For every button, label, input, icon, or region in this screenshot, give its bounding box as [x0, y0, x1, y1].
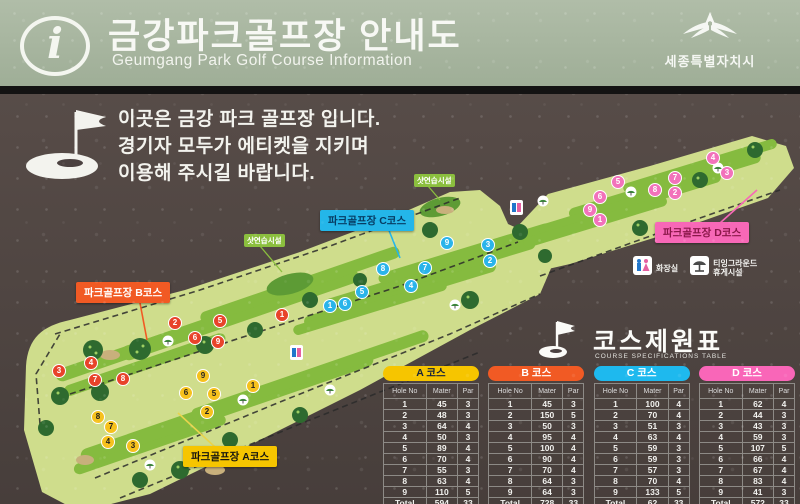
spec-table-subtitle: COURSE SPECIFICATIONS TABLE	[595, 353, 727, 360]
spec-cell: 4	[384, 432, 427, 443]
hole-marker-B7: 7	[88, 373, 102, 387]
spec-cell: 8	[384, 476, 427, 487]
spec-cell: 48	[426, 410, 457, 421]
notice-line: 경기자 모두가 에티켓을 지키며	[118, 133, 381, 160]
spec-cell: 5	[594, 443, 637, 454]
spec-cell: Total	[489, 498, 532, 504]
spec-cell: 7	[489, 465, 532, 476]
hole-marker-C8: 8	[376, 262, 390, 276]
spec-cell: 3	[668, 443, 689, 454]
spec-cell: 67	[742, 465, 773, 476]
hole-marker-B3: 3	[52, 364, 66, 378]
shelter-icon	[690, 256, 709, 280]
spec-cell: 70	[531, 465, 562, 476]
spec-table: Hole NoMaterPar1100427043513463455936593…	[594, 383, 690, 504]
hole-marker-C1: 1	[323, 299, 337, 313]
spec-cell: 8	[594, 476, 637, 487]
spec-row: 8643	[489, 476, 584, 487]
spec-cell: 110	[426, 487, 457, 498]
course-label-D: 파크골프장 D코스	[655, 222, 749, 243]
spec-cell: 133	[637, 487, 668, 498]
spec-column-header: Hole No	[594, 384, 637, 399]
golf-hole-flag-icon	[24, 102, 108, 182]
hole-marker-D4: 4	[706, 151, 720, 165]
hole-marker-C6: 6	[338, 297, 352, 311]
spec-cell: 4	[668, 476, 689, 487]
spec-cell: 9	[384, 487, 427, 498]
hole-marker-B8: 8	[116, 372, 130, 386]
spec-cell: 3	[563, 487, 584, 498]
course-table-header: D 코스	[699, 366, 795, 381]
course-label-B: 파크골프장 B코스	[76, 282, 170, 303]
spec-row: 4954	[489, 432, 584, 443]
spec-cell: 7	[594, 465, 637, 476]
spec-row: 2443	[699, 410, 794, 421]
spec-cell: 9	[594, 487, 637, 498]
hole-marker-C4: 4	[404, 279, 418, 293]
course-map-board: 이곳은 금강 파크 골프장 입니다. 경기자 모두가 에티켓을 지키며 이용해 …	[0, 94, 800, 504]
spec-row: 9413	[699, 487, 794, 498]
spec-cell: 3	[458, 432, 479, 443]
spec-cell: 2	[699, 410, 742, 421]
course-table-B: B 코스Hole NoMaterPar145321505350349545100…	[488, 366, 584, 504]
hole-marker-A8: 8	[91, 410, 105, 424]
spec-column-header: Par	[458, 384, 479, 399]
spec-cell: 50	[426, 432, 457, 443]
spec-cell: 4	[563, 454, 584, 465]
spec-row: 4634	[594, 432, 689, 443]
spec-cell: 1	[594, 399, 637, 410]
spec-row: 6593	[594, 454, 689, 465]
spec-column-header: Mater	[637, 384, 668, 399]
hole-marker-D6: 6	[593, 190, 607, 204]
spec-cell: Total	[594, 498, 637, 504]
spec-cell: 3	[699, 421, 742, 432]
spec-row: 3433	[699, 421, 794, 432]
spec-cell: 8	[699, 476, 742, 487]
spec-cell: 62	[637, 498, 668, 504]
legend-label: 티잉그라운드휴게시설	[713, 259, 757, 277]
spec-cell: 4	[458, 443, 479, 454]
spec-cell: 59	[742, 432, 773, 443]
spec-cell: 2	[594, 410, 637, 421]
facility-label: 샷연습시설	[414, 174, 455, 187]
spec-column-header: Par	[668, 384, 689, 399]
legend-item: 티잉그라운드휴게시설	[690, 256, 757, 280]
spec-cell: 4	[774, 476, 795, 487]
spec-cell: 107	[742, 443, 773, 454]
hole-marker-C7: 7	[418, 261, 432, 275]
spec-cell: 33	[458, 498, 479, 504]
spec-column-header: Par	[563, 384, 584, 399]
spec-row: 8634	[384, 476, 479, 487]
hole-marker-B2: 2	[168, 316, 182, 330]
spec-cell: 59	[637, 443, 668, 454]
sejong-city-logo: 세종특별자치시	[640, 10, 780, 70]
spec-cell: 5	[563, 410, 584, 421]
hole-marker-D5: 5	[611, 175, 625, 189]
hole-marker-D7: 7	[668, 171, 682, 185]
hole-marker-D2: 2	[668, 186, 682, 200]
spec-cell: 63	[637, 432, 668, 443]
spec-row: 7553	[384, 465, 479, 476]
spec-cell: 3	[458, 465, 479, 476]
spec-row: 2483	[384, 410, 479, 421]
spec-row: 5894	[384, 443, 479, 454]
information-icon: i	[20, 16, 90, 76]
spec-cell: 3	[774, 487, 795, 498]
hole-marker-A1: 1	[246, 379, 260, 393]
spec-row: 9643	[489, 487, 584, 498]
table-flag-icon	[539, 318, 579, 360]
spec-cell: 4	[563, 465, 584, 476]
spec-row: 6904	[489, 454, 584, 465]
spec-row: 4503	[384, 432, 479, 443]
spec-cell: 5	[489, 443, 532, 454]
spec-cell: 70	[426, 454, 457, 465]
hole-marker-A7: 7	[104, 420, 118, 434]
spec-cell: 7	[384, 465, 427, 476]
spec-column-header: Par	[774, 384, 795, 399]
hole-marker-B6: 6	[188, 331, 202, 345]
spec-row: 6704	[384, 454, 479, 465]
spec-cell: 6	[699, 454, 742, 465]
spec-row: 51075	[699, 443, 794, 454]
spec-cell: 50	[531, 421, 562, 432]
spec-cell: 1	[489, 399, 532, 410]
spec-row: 21505	[489, 410, 584, 421]
spec-cell: 100	[637, 399, 668, 410]
spec-cell: 3	[384, 421, 427, 432]
spec-cell: 3	[774, 410, 795, 421]
course-table-header: A 코스	[383, 366, 479, 381]
spec-cell: 4	[563, 432, 584, 443]
notice-line: 이용해 주시길 바랍니다.	[118, 160, 381, 187]
spec-cell: 64	[531, 487, 562, 498]
spec-row: 3503	[489, 421, 584, 432]
spec-cell: 7	[699, 465, 742, 476]
spec-row: 5593	[594, 443, 689, 454]
golf-course-sign: i 금강파크골프장 안내도 Geumgang Park Golf Course …	[0, 0, 800, 504]
spec-cell: 3	[668, 421, 689, 432]
spec-row: 91105	[384, 487, 479, 498]
spec-row: 51004	[489, 443, 584, 454]
spec-cell: 6	[489, 454, 532, 465]
hole-marker-C9: 9	[440, 236, 454, 250]
spec-table: Hole NoMaterPar1624244334334593510756664…	[699, 383, 795, 504]
spec-cell: 70	[637, 410, 668, 421]
hole-marker-A6: 6	[179, 386, 193, 400]
course-table-header: B 코스	[488, 366, 584, 381]
sign-subtitle: Geumgang Park Golf Course Information	[112, 52, 412, 70]
spec-cell: 1	[699, 399, 742, 410]
spec-cell: 55	[426, 465, 457, 476]
spec-cell: 43	[742, 421, 773, 432]
hole-marker-A5: 5	[207, 387, 221, 401]
spec-cell: 4	[489, 432, 532, 443]
course-table-A: A 코스Hole NoMaterPar145324833644450358946…	[383, 366, 479, 504]
hole-marker-B4: 4	[84, 356, 98, 370]
hole-marker-D8: 8	[648, 183, 662, 197]
spec-cell: 3	[563, 421, 584, 432]
hole-marker-B9: 9	[211, 335, 225, 349]
spec-cell: 63	[426, 476, 457, 487]
spec-column-header: Hole No	[384, 384, 427, 399]
legend-item: 화장실	[633, 256, 678, 280]
spec-cell: 83	[742, 476, 773, 487]
spec-cell: 3	[489, 421, 532, 432]
spec-cell: 57	[637, 465, 668, 476]
spec-row: 8834	[699, 476, 794, 487]
sign-header: i 금강파크골프장 안내도 Geumgang Park Golf Course …	[0, 0, 800, 86]
spec-row: 3513	[594, 421, 689, 432]
spec-cell: 8	[489, 476, 532, 487]
spec-cell: 3	[668, 454, 689, 465]
spec-cell: 3	[668, 465, 689, 476]
course-label-C: 파크골프장 C코스	[320, 210, 414, 231]
spec-row: 11004	[594, 399, 689, 410]
spec-cell: 33	[563, 498, 584, 504]
course-label-A: 파크골프장 A코스	[183, 446, 277, 467]
hole-marker-A2: 2	[200, 405, 214, 419]
spec-row: 1624	[699, 399, 794, 410]
spec-cell: 728	[531, 498, 562, 504]
spec-cell: 6	[384, 454, 427, 465]
spec-row: 1453	[384, 399, 479, 410]
spec-cell: 9	[699, 487, 742, 498]
hole-marker-D3: 3	[720, 166, 734, 180]
spec-cell: 3	[458, 410, 479, 421]
hole-marker-A4: 4	[101, 435, 115, 449]
spec-cell: Total	[699, 498, 742, 504]
spec-cell: 4	[668, 399, 689, 410]
spec-column-header: Mater	[426, 384, 457, 399]
spec-cell: 45	[531, 399, 562, 410]
spec-row: 2704	[594, 410, 689, 421]
legend-label: 화장실	[656, 264, 678, 273]
spec-cell: 4	[594, 432, 637, 443]
facility-label: 샷연습시설	[244, 234, 285, 247]
spec-cell: 6	[594, 454, 637, 465]
hole-marker-C3: 3	[481, 238, 495, 252]
spec-row: 6664	[699, 454, 794, 465]
spec-cell: 5	[699, 443, 742, 454]
spec-cell: 44	[742, 410, 773, 421]
spec-cell: 4	[563, 443, 584, 454]
spec-row: 7573	[594, 465, 689, 476]
spec-cell: 5	[668, 487, 689, 498]
spec-cell: 1	[384, 399, 427, 410]
spec-cell: 3	[594, 421, 637, 432]
spec-cell: 2	[384, 410, 427, 421]
spec-cell: 33	[668, 498, 689, 504]
spec-row: 4593	[699, 432, 794, 443]
spec-cell: 3	[563, 476, 584, 487]
spec-table: Hole NoMaterPar1453215053503495451004690…	[488, 383, 584, 504]
spec-table: Hole NoMaterPar1453248336444503589467047…	[383, 383, 479, 504]
spec-cell: 5	[458, 487, 479, 498]
spec-total-row: Total57233	[699, 498, 794, 504]
spec-column-header: Mater	[531, 384, 562, 399]
spec-cell: 5	[384, 443, 427, 454]
spec-cell: 4	[774, 465, 795, 476]
spec-cell: 5	[774, 443, 795, 454]
spec-cell: 45	[426, 399, 457, 410]
spec-row: 3644	[384, 421, 479, 432]
spec-row: 7674	[699, 465, 794, 476]
hole-marker-C5: 5	[355, 285, 369, 299]
spec-cell: 89	[426, 443, 457, 454]
spec-row: 8704	[594, 476, 689, 487]
spec-cell: 3	[774, 432, 795, 443]
hole-marker-B1: 1	[275, 308, 289, 322]
spec-cell: 59	[637, 454, 668, 465]
spec-cell: 2	[489, 410, 532, 421]
spec-total-row: Total72833	[489, 498, 584, 504]
map-legend: 화장실티잉그라운드휴게시설	[633, 256, 757, 280]
spec-cell: 62	[742, 399, 773, 410]
hole-marker-C2: 2	[483, 254, 497, 268]
hole-marker-A9: 9	[196, 369, 210, 383]
spec-cell: 66	[742, 454, 773, 465]
spec-cell: 594	[426, 498, 457, 504]
spec-cell: 95	[531, 432, 562, 443]
spec-cell: 51	[637, 421, 668, 432]
spec-column-header: Mater	[742, 384, 773, 399]
notice-line: 이곳은 금강 파크 골프장 입니다.	[118, 106, 381, 133]
spec-column-header: Hole No	[489, 384, 532, 399]
spec-row: 1453	[489, 399, 584, 410]
spec-cell: 4	[668, 432, 689, 443]
spec-cell: 90	[531, 454, 562, 465]
spec-cell: 3	[774, 421, 795, 432]
spec-cell: 4	[699, 432, 742, 443]
spec-cell: 572	[742, 498, 773, 504]
etiquette-notice: 이곳은 금강 파크 골프장 입니다. 경기자 모두가 에티켓을 지키며 이용해 …	[118, 106, 381, 187]
spec-cell: 64	[531, 476, 562, 487]
header-divider	[0, 86, 800, 94]
spec-row: 91335	[594, 487, 689, 498]
course-tables: A 코스Hole NoMaterPar145324833644450358946…	[383, 366, 795, 504]
spec-cell: 64	[426, 421, 457, 432]
hole-marker-A3: 3	[126, 439, 140, 453]
spec-total-row: Total6233	[594, 498, 689, 504]
course-table-header: C 코스	[594, 366, 690, 381]
sejong-emblem-icon	[675, 10, 745, 44]
hole-marker-B5: 5	[213, 314, 227, 328]
spec-total-row: Total59433	[384, 498, 479, 504]
spec-cell: 4	[458, 476, 479, 487]
course-table-D: D 코스Hole NoMaterPar162424433433459351075…	[699, 366, 795, 504]
spec-row: 7704	[489, 465, 584, 476]
spec-cell: 150	[531, 410, 562, 421]
spec-cell: 4	[774, 399, 795, 410]
spec-cell: 4	[458, 454, 479, 465]
spec-cell: 41	[742, 487, 773, 498]
spec-cell: 4	[774, 454, 795, 465]
restroom-icon	[633, 256, 652, 280]
sejong-logo-text: 세종특별자치시	[640, 51, 780, 70]
spec-cell: 3	[458, 399, 479, 410]
spec-cell: Total	[384, 498, 427, 504]
spec-cell: 100	[531, 443, 562, 454]
spec-cell: 33	[774, 498, 795, 504]
spec-cell: 4	[458, 421, 479, 432]
spec-column-header: Hole No	[699, 384, 742, 399]
hole-marker-D1: 1	[593, 213, 607, 227]
spec-cell: 9	[489, 487, 532, 498]
spec-cell: 3	[563, 399, 584, 410]
course-table-C: C 코스Hole NoMaterPar110042704351346345593…	[594, 366, 690, 504]
spec-cell: 4	[668, 410, 689, 421]
spec-cell: 70	[637, 476, 668, 487]
hole-marker-D9: 9	[583, 203, 597, 217]
